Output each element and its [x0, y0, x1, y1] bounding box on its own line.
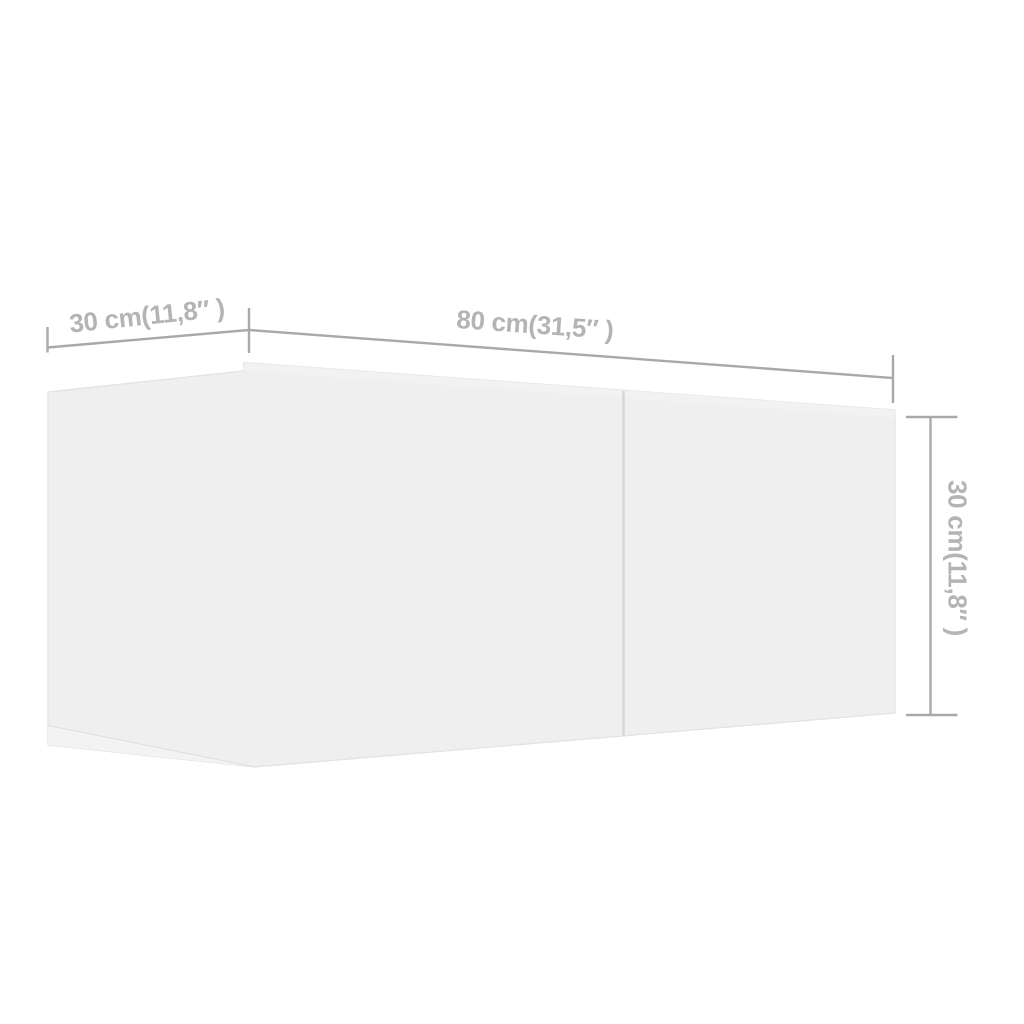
height-dimension-label: 30 cm(11,8″ ): [942, 480, 973, 636]
product-dimension-image: 30 cm(11,8″ ) 80 cm(31,5″ ) 30 cm(11,8″ …: [0, 0, 1024, 1024]
dimension-diagram-svg: [0, 0, 1024, 1024]
cabinet-body: [48, 363, 895, 768]
